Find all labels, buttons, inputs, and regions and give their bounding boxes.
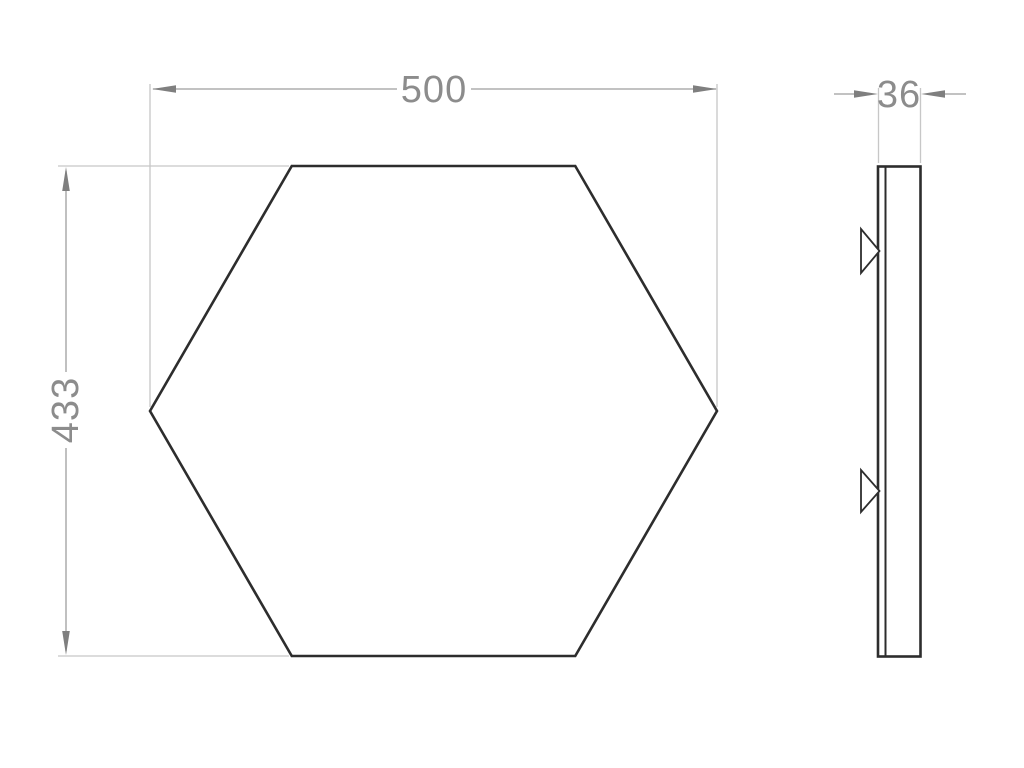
- thickness-dimension-label: 36: [877, 74, 921, 116]
- thickness-arrowhead-left-icon: [854, 90, 878, 98]
- side-view: 36: [834, 74, 966, 657]
- side-profile-outline: [878, 167, 921, 657]
- technical-drawing-canvas: 500 433: [0, 0, 1024, 768]
- thickness-dimension: 36: [834, 74, 966, 163]
- front-view: 500 433: [45, 69, 717, 656]
- height-dimension-label: 433: [45, 377, 87, 443]
- width-arrowhead-left-icon: [152, 85, 176, 93]
- width-arrowhead-right-icon: [693, 85, 717, 93]
- height-arrowhead-bottom-icon: [62, 631, 70, 655]
- thickness-arrowhead-right-icon: [921, 90, 945, 98]
- width-dimension-label: 500: [401, 69, 467, 111]
- hexagon-panel-outline: [150, 166, 717, 656]
- drawing-svg: 500 433: [0, 0, 1024, 768]
- height-arrowhead-top-icon: [62, 167, 70, 191]
